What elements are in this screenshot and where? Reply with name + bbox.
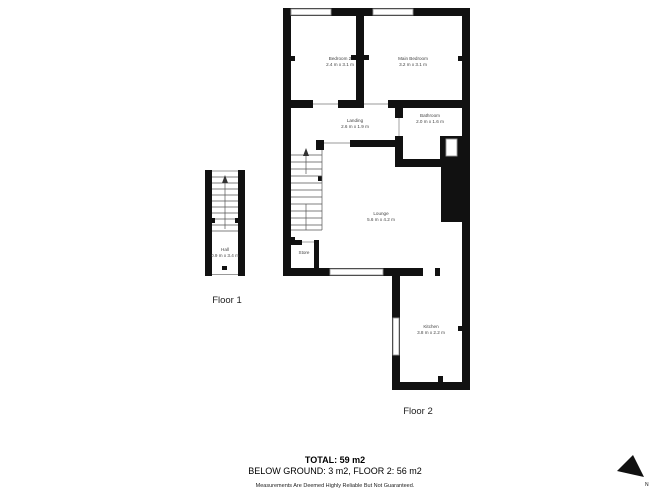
floorplan-page: Bedroom 2 2.4 m x 3.1 m Main Bedroom 3.2… (0, 0, 670, 502)
wall-bathroom-left-a (395, 108, 403, 118)
wall-store-top (290, 240, 302, 245)
lounge-label: Lounge (373, 211, 389, 216)
hall-dims: 0.9 m x 3.4 m (211, 253, 239, 258)
wall-tick (291, 56, 295, 61)
wall-bathroom-bottom (395, 159, 470, 167)
wall-tick (458, 56, 462, 61)
window-lounge (330, 269, 383, 275)
window-main-bedroom (373, 9, 413, 15)
floorplan-drawing: Bedroom 2 2.4 m x 3.1 m Main Bedroom 3.2… (0, 0, 670, 502)
area-breakdown-text: BELOW GROUND: 3 m2, FLOOR 2: 56 m2 (0, 466, 670, 476)
wall-right (462, 8, 470, 390)
floor1-title: Floor 1 (212, 295, 242, 306)
bedroom2-label: Bedroom 2 (329, 56, 352, 61)
stair-wall-stub (316, 140, 324, 150)
wall-bathroom-top (388, 100, 470, 108)
wall-tick (458, 326, 462, 331)
wall-left (205, 170, 212, 276)
wall-bedroom2-bottom-b (338, 100, 364, 108)
wall-right (238, 170, 245, 276)
area-summary: TOTAL: 59 m2 BELOW GROUND: 3 m2, FLOOR 2… (0, 455, 670, 489)
main-bedroom-label: Main Bedroom (398, 56, 428, 61)
stair-up-arrow-icon (303, 148, 309, 156)
bathroom-label: Bathroom (420, 113, 440, 118)
wall-tick (438, 376, 443, 382)
bathroom-recess (446, 139, 457, 156)
lounge-dims: 5.6 m x 4.2 m (367, 217, 395, 222)
wall-tick (212, 218, 215, 223)
floor2-staircase (291, 148, 322, 230)
kitchen-door-stub (435, 268, 440, 276)
hall-label: Hall (221, 247, 229, 252)
wall-tick (318, 176, 322, 181)
wall-left (283, 8, 291, 276)
floor2-title: Floor 2 (403, 406, 433, 417)
total-area-text: TOTAL: 59 m2 (0, 455, 670, 465)
wall-store-right (314, 240, 319, 274)
landing-dims: 2.6 m x 1.9 m (341, 124, 369, 129)
bedroom2-dims: 2.4 m x 3.1 m (326, 62, 354, 67)
store-label: Store (299, 250, 310, 255)
main-bedroom-dims: 3.2 m x 3.1 m (399, 62, 427, 67)
floor2-plan: Bedroom 2 2.4 m x 3.1 m Main Bedroom 3.2… (283, 8, 470, 417)
door-stub (222, 266, 227, 270)
bathroom-dims: 2.0 m x 1.6 m (416, 119, 444, 124)
wall-bedroom-divider (356, 16, 364, 108)
wall-tick (235, 218, 238, 223)
wall-landing-bottom (350, 140, 395, 147)
landing-label: Landing (347, 118, 364, 123)
disclaimer-text: Measurements Are Deemed Highly Reliable … (0, 483, 670, 489)
window-kitchen (393, 318, 399, 355)
kitchen-label: Kitchen (423, 324, 439, 329)
wall-tick (351, 55, 356, 60)
floor1-plan: Hall 0.9 m x 3.4 m Floor 1 (205, 170, 245, 306)
wall-bedroom2-bottom-a (283, 100, 313, 108)
stair-up-arrow-icon (222, 175, 228, 183)
wall-tick (364, 55, 369, 60)
window-bedroom2 (291, 9, 331, 15)
void-block (441, 167, 462, 222)
kitchen-dims: 3.8 m x 2.2 m (417, 330, 445, 335)
wall-kitchen-bottom (392, 382, 470, 390)
